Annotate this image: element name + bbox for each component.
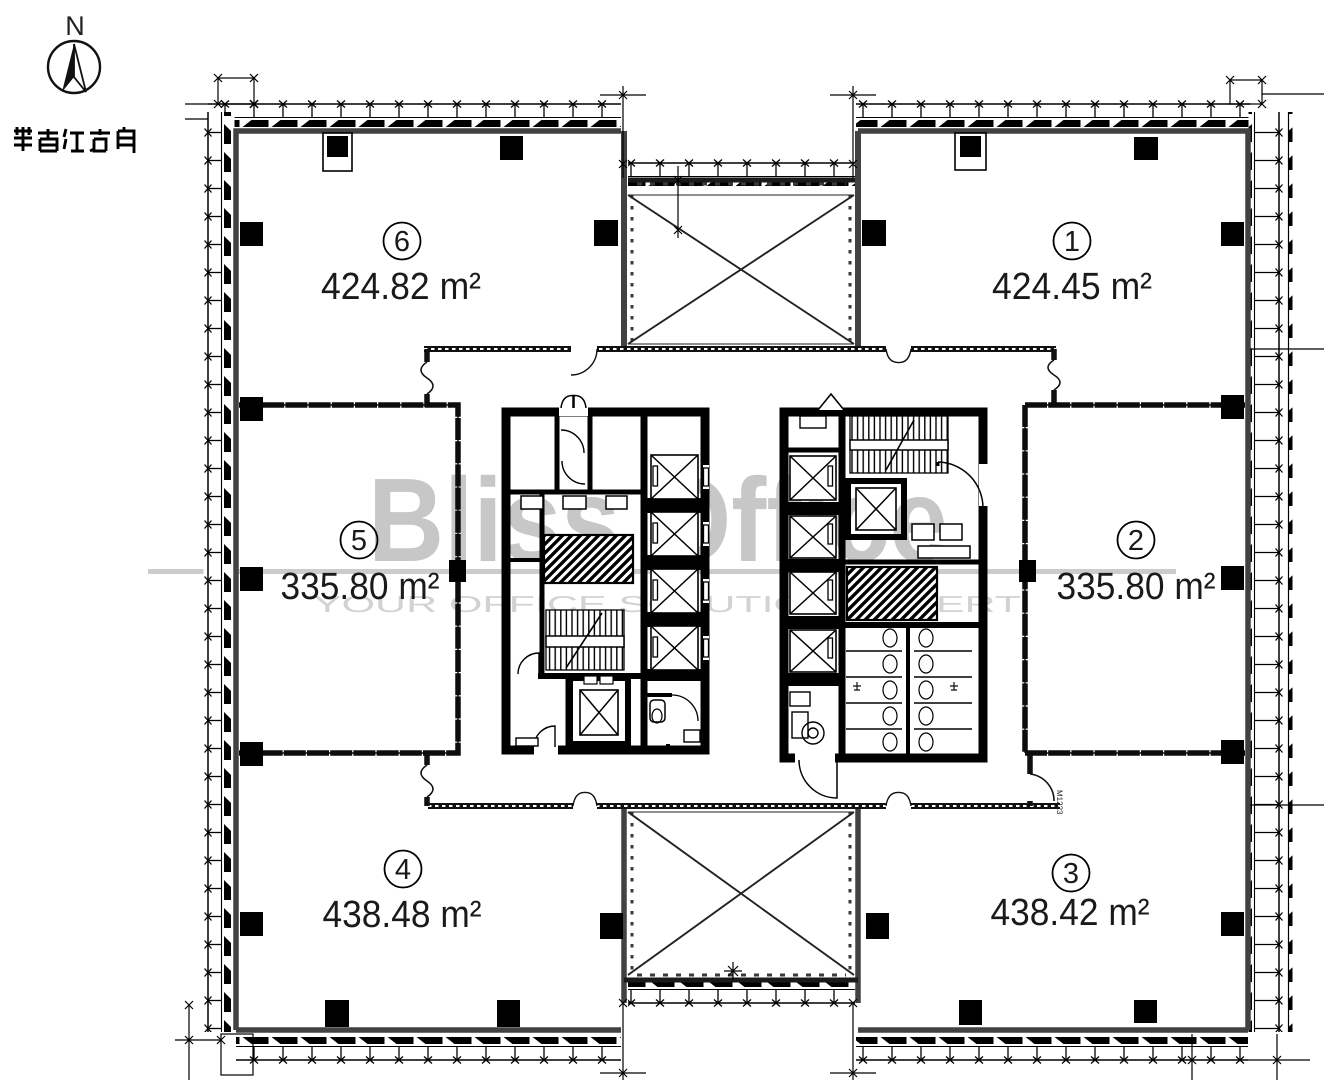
- svg-text:3: 3: [1063, 858, 1079, 890]
- svg-text:424.45 m²: 424.45 m²: [992, 266, 1152, 308]
- svg-text:4: 4: [395, 854, 411, 886]
- svg-text:6: 6: [394, 226, 410, 258]
- svg-text:1: 1: [1064, 226, 1080, 258]
- svg-text:5: 5: [351, 525, 367, 557]
- svg-text:335.80 m²: 335.80 m²: [1057, 566, 1216, 608]
- svg-text:438.48 m²: 438.48 m²: [323, 894, 482, 936]
- svg-text:2: 2: [1128, 525, 1144, 557]
- svg-text:424.82 m²: 424.82 m²: [321, 266, 481, 308]
- svg-text:438.42 m²: 438.42 m²: [991, 892, 1150, 934]
- svg-text:M1223: M1223: [1055, 790, 1064, 815]
- svg-text:N: N: [65, 11, 85, 41]
- svg-text:335.80 m²: 335.80 m²: [281, 566, 440, 608]
